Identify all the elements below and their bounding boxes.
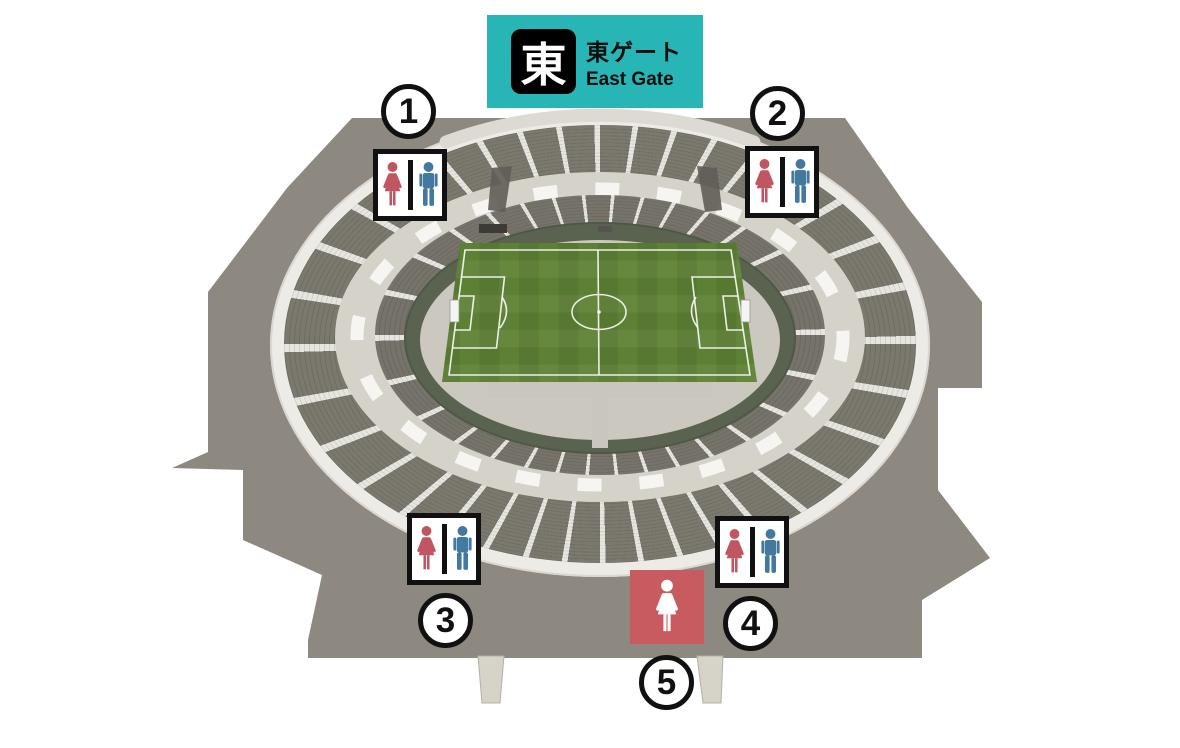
restroom-sign-2: [745, 146, 819, 218]
pitch-platform: [488, 378, 712, 448]
east-gate-banner: 東 東ゲート East Gate: [487, 15, 703, 108]
female-icon: [379, 159, 406, 211]
female-icon: [413, 523, 440, 575]
sign-divider: [780, 157, 785, 207]
male-icon: [415, 159, 442, 211]
gate-label-en: East Gate: [586, 69, 682, 91]
womens-restroom-sign-5: [630, 570, 704, 644]
sign-divider: [408, 160, 413, 210]
male-icon: [787, 156, 814, 208]
marker-number-2: 2: [750, 86, 805, 141]
restroom-sign-4: [715, 516, 789, 588]
center-spot: [597, 310, 601, 314]
marker-number-3: 3: [418, 593, 473, 648]
scoreboard: [479, 224, 507, 233]
stand-gap-left: [488, 166, 512, 212]
female-icon: [721, 526, 748, 578]
sign-divider: [442, 524, 447, 574]
gate-kanji: 東: [521, 29, 567, 95]
marker-3-label: 3: [436, 603, 455, 638]
goal-left: [450, 300, 459, 322]
gate-kanji-badge: 東: [511, 29, 576, 94]
restroom-sign-3: [407, 513, 481, 585]
gate-label-ja: 東ゲート: [586, 33, 682, 67]
female-icon: [651, 577, 683, 637]
marker-5-label: 5: [657, 665, 676, 700]
marker-1-label: 1: [399, 94, 418, 129]
stadium-map: 東 東ゲート East Gate 1 2: [0, 0, 1180, 748]
marker-number-1: 1: [381, 84, 436, 139]
female-icon: [751, 156, 778, 208]
goal-right: [741, 300, 750, 322]
gate-labels: 東ゲート East Gate: [586, 33, 682, 91]
stand-gap-right: [697, 166, 722, 212]
male-icon: [449, 523, 476, 575]
restroom-sign-1: [373, 149, 447, 221]
marker-4-label: 4: [741, 606, 760, 641]
male-icon: [757, 526, 784, 578]
camera-platform: [598, 226, 612, 232]
marker-2-label: 2: [768, 96, 787, 131]
main-stand-roof: [446, 115, 754, 142]
marker-number-5: 5: [639, 655, 694, 710]
sign-divider: [750, 527, 755, 577]
marker-number-4: 4: [723, 596, 778, 651]
pitch-layer: [0, 0, 1180, 748]
